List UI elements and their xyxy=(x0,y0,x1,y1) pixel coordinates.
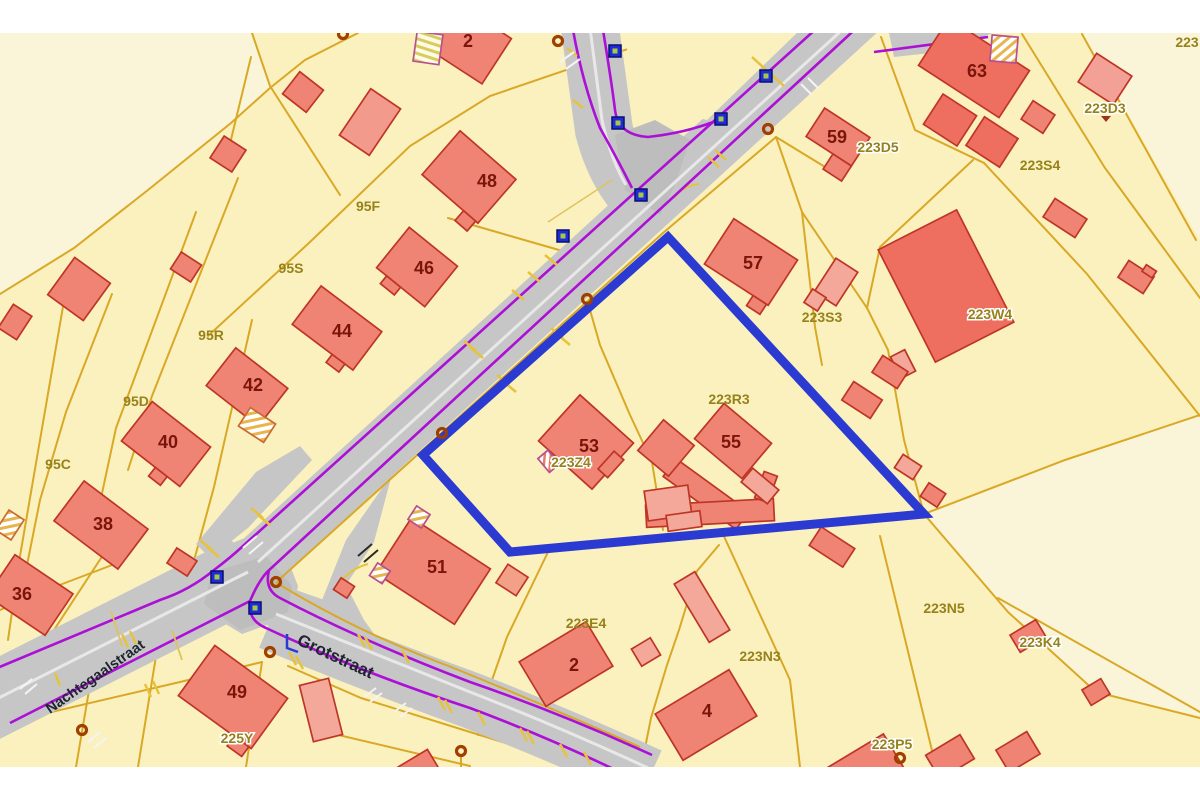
svg-text:223S4: 223S4 xyxy=(1020,157,1061,173)
svg-text:49: 49 xyxy=(227,682,247,702)
svg-text:223D5: 223D5 xyxy=(857,139,898,155)
svg-text:223W4: 223W4 xyxy=(968,306,1013,322)
svg-text:4: 4 xyxy=(702,701,712,721)
svg-text:59: 59 xyxy=(827,127,847,147)
svg-text:223E4: 223E4 xyxy=(566,615,607,631)
svg-text:223: 223 xyxy=(1175,34,1199,50)
svg-text:223N5: 223N5 xyxy=(923,600,964,616)
svg-text:95S: 95S xyxy=(279,260,304,276)
svg-text:38: 38 xyxy=(93,514,113,534)
svg-text:40: 40 xyxy=(158,432,178,452)
svg-text:44: 44 xyxy=(332,321,352,341)
svg-text:63: 63 xyxy=(967,61,987,81)
svg-text:223S3: 223S3 xyxy=(802,309,843,325)
svg-text:51: 51 xyxy=(427,557,447,577)
svg-text:95C: 95C xyxy=(45,456,71,472)
svg-text:2: 2 xyxy=(569,655,579,675)
svg-text:2: 2 xyxy=(463,31,473,51)
svg-text:57: 57 xyxy=(743,253,763,273)
svg-text:225Y: 225Y xyxy=(221,730,254,746)
svg-text:95R: 95R xyxy=(198,327,224,343)
svg-text:223N3: 223N3 xyxy=(739,648,780,664)
svg-text:55: 55 xyxy=(721,432,741,452)
svg-text:95F: 95F xyxy=(356,198,381,214)
svg-text:53: 53 xyxy=(579,436,599,456)
svg-text:95D: 95D xyxy=(123,393,149,409)
svg-text:223K4: 223K4 xyxy=(1019,634,1060,650)
svg-text:223D3: 223D3 xyxy=(1084,100,1125,116)
svg-text:223P5: 223P5 xyxy=(872,736,913,752)
svg-text:46: 46 xyxy=(414,258,434,278)
svg-text:223R3: 223R3 xyxy=(708,391,749,407)
svg-text:42: 42 xyxy=(243,375,263,395)
svg-text:36: 36 xyxy=(12,584,32,604)
svg-text:223Z4: 223Z4 xyxy=(551,454,591,470)
svg-text:48: 48 xyxy=(477,171,497,191)
